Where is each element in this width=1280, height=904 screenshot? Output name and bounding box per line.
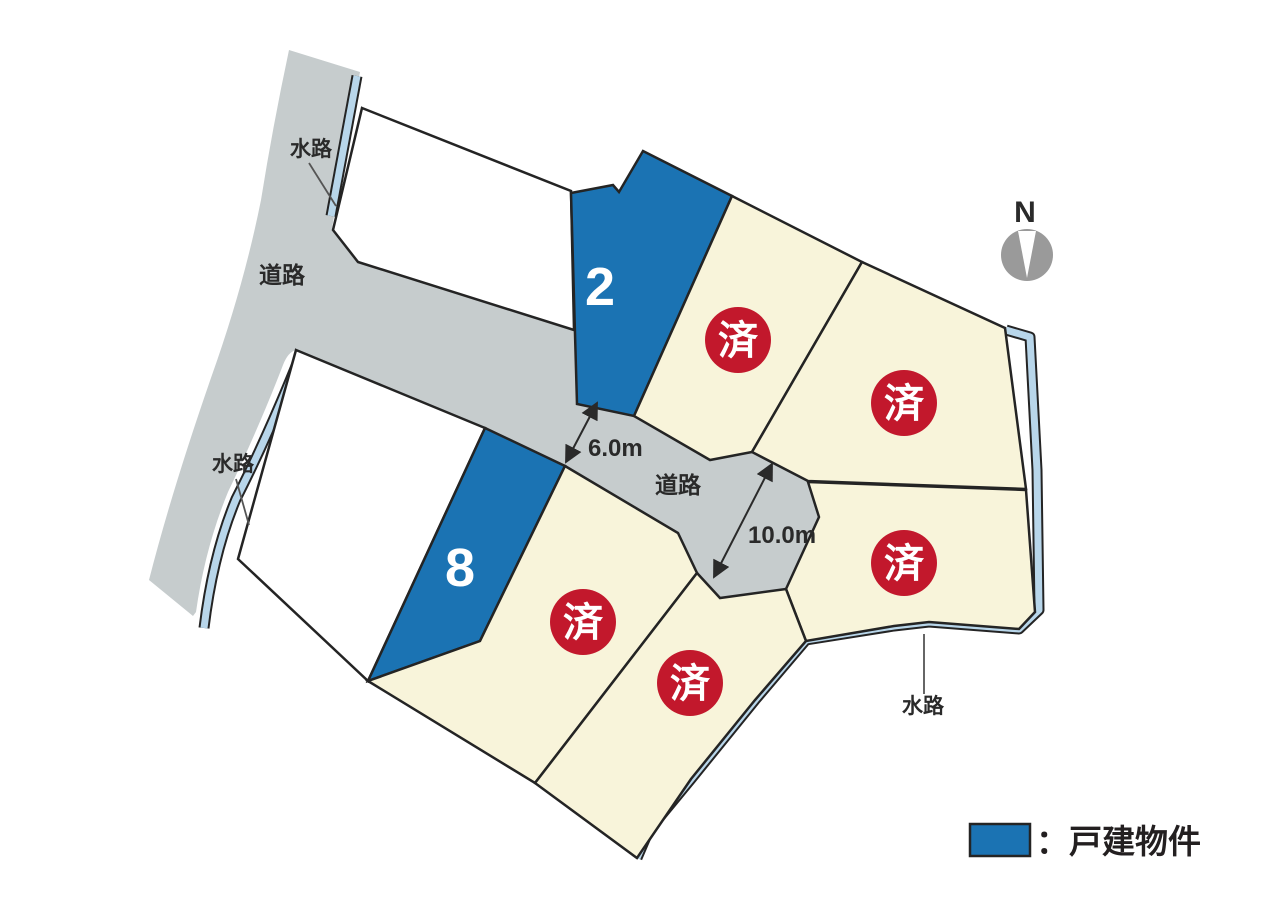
lot-8-number: 8 (445, 538, 475, 598)
legend: ：戸建物件 (970, 823, 1201, 860)
sold-badge-4-text: 済 (563, 601, 604, 645)
north-label: N (1014, 196, 1036, 229)
legend-label: ：戸建物件 (1036, 823, 1201, 860)
legend-swatch (970, 824, 1030, 856)
road-label-center: 道路 (655, 472, 702, 498)
north-compass: N (1001, 196, 1053, 281)
sold-badge-5: 済 (657, 650, 723, 716)
sold-badge-2: 済 (871, 370, 937, 436)
sold-badge-5-text: 済 (670, 662, 711, 706)
sold-badge-1: 済 (705, 307, 771, 373)
road-label-left: 道路 (259, 262, 306, 288)
lot-2-number: 2 (585, 257, 615, 317)
site-plan: 済 済 済 済 済 2 8 6.0m 10.0m 水路 水路 水路 道路 道路 … (0, 0, 1280, 904)
sold-badge-4: 済 (550, 589, 616, 655)
sold-badge-3: 済 (871, 530, 937, 596)
site-plan-svg: 済 済 済 済 済 2 8 6.0m 10.0m 水路 水路 水路 道路 道路 … (0, 0, 1280, 904)
sold-badge-2-text: 済 (884, 382, 925, 426)
waterway-label-top: 水路 (290, 137, 333, 161)
sold-badge-3-text: 済 (884, 542, 925, 586)
waterway-label-right: 水路 (902, 694, 945, 718)
waterway-label-left: 水路 (212, 452, 255, 476)
dimension-label-6m: 6.0m (588, 435, 643, 462)
sold-badge-1-text: 済 (718, 319, 759, 363)
dimension-label-10m: 10.0m (748, 522, 816, 549)
